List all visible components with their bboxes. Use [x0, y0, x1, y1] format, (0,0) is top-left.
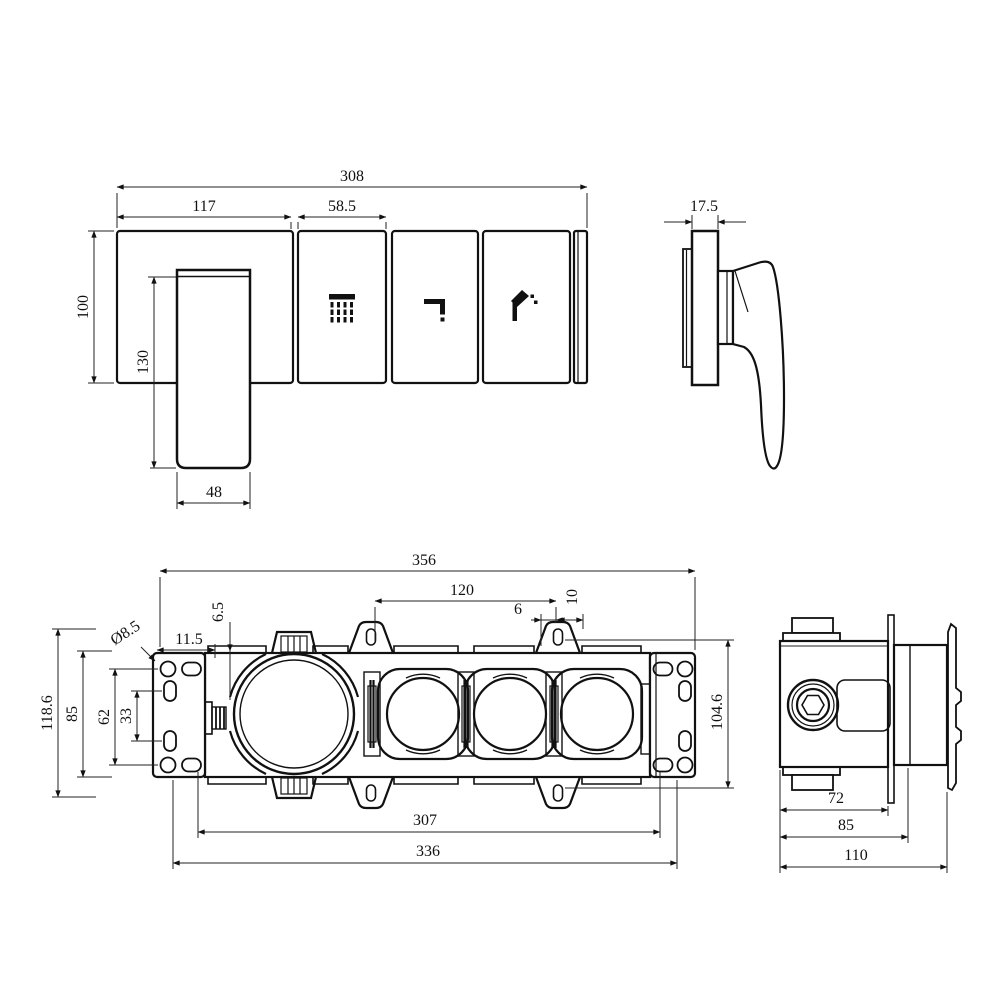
svg-text:308: 308: [340, 168, 364, 185]
box-tab-bottom-base: [783, 767, 840, 775]
panel-button-spout: [392, 231, 478, 383]
handle-side-neck: [718, 271, 733, 344]
svg-text:110: 110: [844, 847, 867, 864]
svg-text:33: 33: [118, 708, 135, 724]
svg-text:62: 62: [96, 709, 113, 725]
panel-side-trim-plate: [692, 231, 718, 385]
dim-trim-thickness: 17.5: [664, 198, 746, 229]
svg-text:130: 130: [135, 350, 152, 374]
svg-text:85: 85: [64, 706, 81, 722]
dim-panel-button-width: 58.5: [298, 198, 386, 229]
svg-text:104.6: 104.6: [709, 694, 726, 730]
svg-text:118.6: 118.6: [39, 695, 56, 730]
dim-panel-section-width: 117: [117, 198, 291, 229]
svg-text:72: 72: [828, 790, 844, 807]
technical-drawing-page: 308 117 58.5 100 130 4: [0, 0, 1000, 1000]
svg-text:117: 117: [192, 198, 215, 215]
box-tab-top: [792, 618, 833, 633]
svg-text:48: 48: [206, 484, 222, 501]
dim-hole-diameter: Ø8.5: [108, 618, 155, 661]
view-panel-side: 17.5: [664, 198, 784, 469]
svg-text:85: 85: [838, 817, 854, 834]
svg-text:6: 6: [514, 601, 522, 618]
drawing-canvas: 308 117 58.5 100 130 4: [0, 0, 1000, 1000]
svg-text:307: 307: [413, 812, 437, 829]
bracket-tab-bottom-right: [536, 777, 580, 808]
wall-flange: [948, 624, 961, 790]
handle-body: [177, 270, 250, 468]
svg-text:100: 100: [75, 295, 92, 319]
svg-text:336: 336: [416, 843, 440, 860]
svg-text:58.5: 58.5: [328, 198, 356, 215]
svg-text:356: 356: [412, 552, 436, 569]
dim-port-spacing: 120: [375, 582, 556, 643]
view-bracket-front: 356 120 6 10 11.5 Ø8.5: [39, 552, 734, 869]
panel-side-backplate: [683, 249, 692, 367]
dim-handle-width: 48: [177, 472, 250, 509]
box-tab-bottom: [792, 775, 833, 790]
handle-side-lever: [733, 262, 784, 469]
panel-end-cap: [574, 231, 587, 383]
box-tab-top-base: [783, 633, 840, 641]
svg-text:17.5: 17.5: [690, 198, 718, 215]
mixer-handle: [177, 270, 250, 468]
dim-panel-height: 100: [75, 231, 114, 383]
svg-text:11.5: 11.5: [175, 631, 202, 648]
svg-text:Ø8.5: Ø8.5: [108, 618, 144, 649]
bracket-tab-top-left: [349, 622, 393, 653]
bracket-tab-top-right: [536, 622, 580, 653]
bracket-tab-bottom-left: [349, 777, 393, 808]
panel-button-handshower: [483, 231, 570, 383]
svg-text:6.5: 6.5: [210, 602, 227, 622]
box-collar: [894, 645, 947, 765]
svg-text:120: 120: [450, 582, 474, 599]
view-panel-front: 308 117 58.5 100 130 4: [75, 168, 587, 509]
svg-text:10: 10: [564, 589, 581, 605]
view-box-side: 72 85 110: [780, 615, 961, 873]
dim-overall-depth: 110: [780, 792, 947, 873]
dim-mount-hole-span: 307: [198, 772, 660, 838]
panel-button-rainshower: [298, 231, 386, 383]
